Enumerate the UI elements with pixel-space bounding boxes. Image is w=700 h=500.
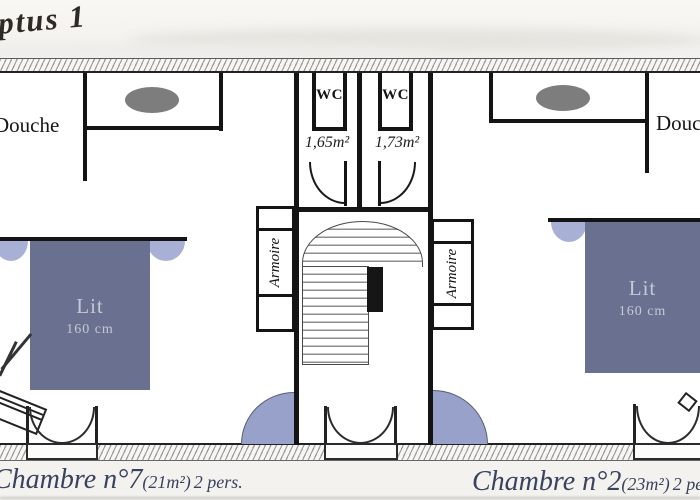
window-chambre7-threshold [26,443,98,460]
bed-left-label: Lit [76,294,104,319]
chambre2-name: Chambre n°2 [472,466,621,497]
wall-shower-right [489,73,493,123]
bedside-left-a [0,241,28,261]
paper-texture [0,44,460,56]
window-chambre2-threshold [633,443,700,460]
window-center-swing [327,407,361,444]
window-center-jamb [394,406,397,445]
wc-left-label: WC [316,87,343,104]
staircase-winder [302,221,423,267]
window-chambre7-jamb [95,406,98,445]
armoire-left-label: Armoire [259,231,292,294]
toilet-left: WC [312,73,347,131]
bedside-left-b [147,241,185,261]
douche-right-label: Douche [656,111,700,136]
wc-left-door-leaf [344,161,347,206]
staircase-steps [302,266,369,365]
chambre7-name: Chambre n°7 [0,464,142,495]
wall-shower-left [83,126,223,130]
douche-left-label: Douche [0,113,59,138]
window-center-swing [360,407,394,444]
wall-shower-right [645,73,649,173]
wc-left-area-label: 1,65m² [294,134,360,152]
armchair-sketch [0,341,17,376]
toilet-right: WC [378,73,413,131]
chambre2-capacity: 2 pers. [673,474,700,494]
bed-chambre7: Lit 160 cm [30,241,150,390]
exterior-wall-top [0,58,700,73]
door-swing-chambre2 [433,390,488,444]
paper-band-top [0,0,700,58]
door-swing-chambre7 [241,392,294,444]
wc-right-door-swing [380,162,416,204]
bed-chambre2: Lit 160 cm [585,222,700,373]
chambre2-area: (23m²) [621,474,669,494]
window-chambre2-swing [668,406,700,444]
chambre7-capacity: 2 pers. [194,472,243,492]
shower-tray-icon [125,87,179,113]
chambre7-label: Chambre n°7(21m²)2 pers. [0,464,243,496]
window-chambre2-swing [636,406,668,444]
bed-left-size: 160 cm [66,322,114,338]
floor-plan: ptus 1 Douche Douche WC WC 1,65m² 1,73m²… [0,0,700,500]
shower-tray-icon [536,85,590,111]
chambre2-label: Chambre n°2(23m²)2 pers. [472,466,700,498]
bed-right-size: 160 cm [619,304,667,320]
wc-right-area-label: 1,73m² [364,134,430,152]
armoire-right-shelf [431,303,474,306]
bed-right-label: Lit [629,276,657,301]
wc-left-door-swing [309,162,345,204]
window-center-threshold [324,443,398,460]
wall-shower-right [489,119,649,123]
armoire-right-label: Armoire [434,244,471,303]
wc-right-door-leaf [378,161,381,206]
window-chambre7-swing [62,407,95,444]
staircase-newel [367,267,383,312]
bedside-right [551,222,587,242]
wall-stairwell-top [294,207,433,212]
wall-shower-left [219,73,223,131]
window-chambre7-swing [29,407,62,444]
wc-right-label: WC [382,87,409,104]
armoire-left-shelf [256,294,295,297]
chambre7-area: (21m²) [142,472,190,492]
